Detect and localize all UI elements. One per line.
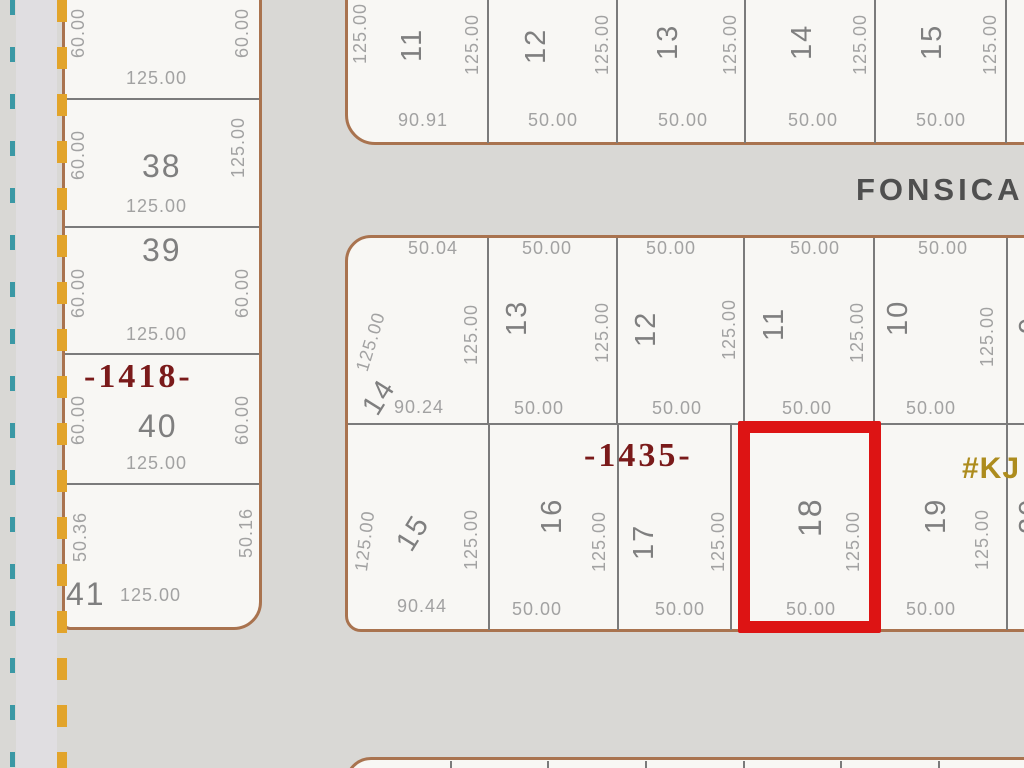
lot-divider [616,238,618,423]
lot-number-17: 17 [628,524,661,560]
dim-bottom: 125.00 [120,585,181,606]
lot-number-9-partial: 9 [1014,316,1024,334]
plat-map: 60.00 60.00 125.00 38 60.00 125.00 125.0… [0,0,1024,768]
block-label-1418: -1418- [84,358,193,396]
dim-left: 60.00 [68,395,89,445]
lot-divider [65,226,259,228]
dim-right: 125.00 [980,14,1001,75]
dim-bottom: 50.00 [655,599,705,620]
lot-number-40: 40 [138,408,178,445]
lot-divider [645,761,647,768]
lot-divider [1006,238,1008,423]
lot-number-19: 19 [920,498,953,534]
lot-divider [873,238,875,423]
dim-bottom: 50.00 [512,599,562,620]
dim-bottom: 90.91 [398,110,448,131]
lot-number-12: 12 [630,311,663,347]
lot-divider [547,761,549,768]
dim-right: 125.00 [228,117,249,178]
dim-right: 125.00 [708,511,729,572]
lot-number-20-partial: 20 [1014,498,1024,534]
lot-number-14: 14 [786,24,819,60]
dim-bottom: 50.00 [916,110,966,131]
dim-top: 50.04 [408,238,458,259]
dim-bottom: 50.00 [658,110,708,131]
dim-right: 125.00 [592,14,613,75]
dim-left: 60.00 [68,8,89,58]
dim-right: 60.00 [232,268,253,318]
lot-divider [487,0,489,143]
dim-bottom: 50.00 [514,398,564,419]
dim-right: 125.00 [972,509,993,570]
lot-number-11: 11 [758,307,791,341]
lot-divider [65,353,259,355]
dim-right: 50.16 [236,508,257,558]
dim-bottom: 50.00 [906,599,956,620]
lot-number-12: 12 [520,28,553,64]
dim-right: 125.00 [977,306,998,367]
lot-number-15: 15 [916,24,949,60]
dim-right: 125.00 [719,299,740,360]
dim-right: 125.00 [589,511,610,572]
lot-divider [348,423,1024,425]
lot-divider [488,425,490,630]
dim-bottom: 125.00 [126,196,187,217]
lot-divider [487,238,489,423]
lot-number-11: 11 [396,28,429,62]
lot-divider [65,98,259,100]
highlight-lot-18 [738,421,881,633]
dim-right: 60.00 [232,8,253,58]
dim-right: 125.00 [720,14,741,75]
lot-divider [840,761,842,768]
dim-right: 125.00 [850,14,871,75]
dim-left: 60.00 [68,130,89,180]
lot-divider [743,761,745,768]
kj-marker: #KJ [962,452,1020,486]
dim-bottom: 50.00 [782,398,832,419]
dim-left: 60.00 [68,268,89,318]
lot-number-13: 13 [652,24,685,60]
lot-number-38: 38 [142,148,182,185]
dim-top: 50.00 [790,238,840,259]
dim-top: 50.00 [522,238,572,259]
dim-bottom: 125.00 [126,324,187,345]
dim-right: 60.00 [232,395,253,445]
lot-divider [450,761,452,768]
lot-number-16: 16 [536,498,569,534]
lot-divider [65,483,259,485]
lot-number-10: 10 [882,300,915,336]
dim-right: 125.00 [592,302,613,363]
block-south-outline [345,757,1024,768]
dim-bottom: 50.00 [652,398,702,419]
lot-number-13: 13 [501,300,534,336]
road-edge-dashed-line [57,0,67,768]
dim-right: 125.00 [461,304,482,365]
lot-number-39: 39 [142,232,182,269]
dim-bottom: 50.00 [788,110,838,131]
municipal-boundary-dashed-line [10,0,15,768]
dim-bottom: 90.24 [394,397,444,418]
dim-bottom: 90.44 [397,596,447,617]
street-name-fonsica: FONSICA [856,172,1024,208]
lot-divider [616,0,618,143]
dim-top: 50.00 [646,238,696,259]
dim-right: 125.00 [462,14,483,75]
dim-left: 50.36 [70,512,91,562]
lot-divider [744,0,746,143]
dim-bottom: 50.00 [906,398,956,419]
lot-divider [730,425,732,630]
lot-divider [938,761,940,768]
dim-right: 125.00 [461,509,482,570]
road-strip [16,0,57,768]
dim-top: 50.00 [918,238,968,259]
dim-bottom: 125.00 [126,68,187,89]
lot-divider [743,238,745,423]
dim-bottom: 125.00 [126,453,187,474]
dim-bottom: 50.00 [528,110,578,131]
lot-divider [1005,0,1007,143]
lot-divider [874,0,876,143]
block-1435-outline [345,235,1024,632]
dim-left: 125.00 [350,3,371,64]
dim-right: 125.00 [847,302,868,363]
block-label-1435: -1435- [584,437,693,475]
lot-number-41: 41 [66,576,106,613]
